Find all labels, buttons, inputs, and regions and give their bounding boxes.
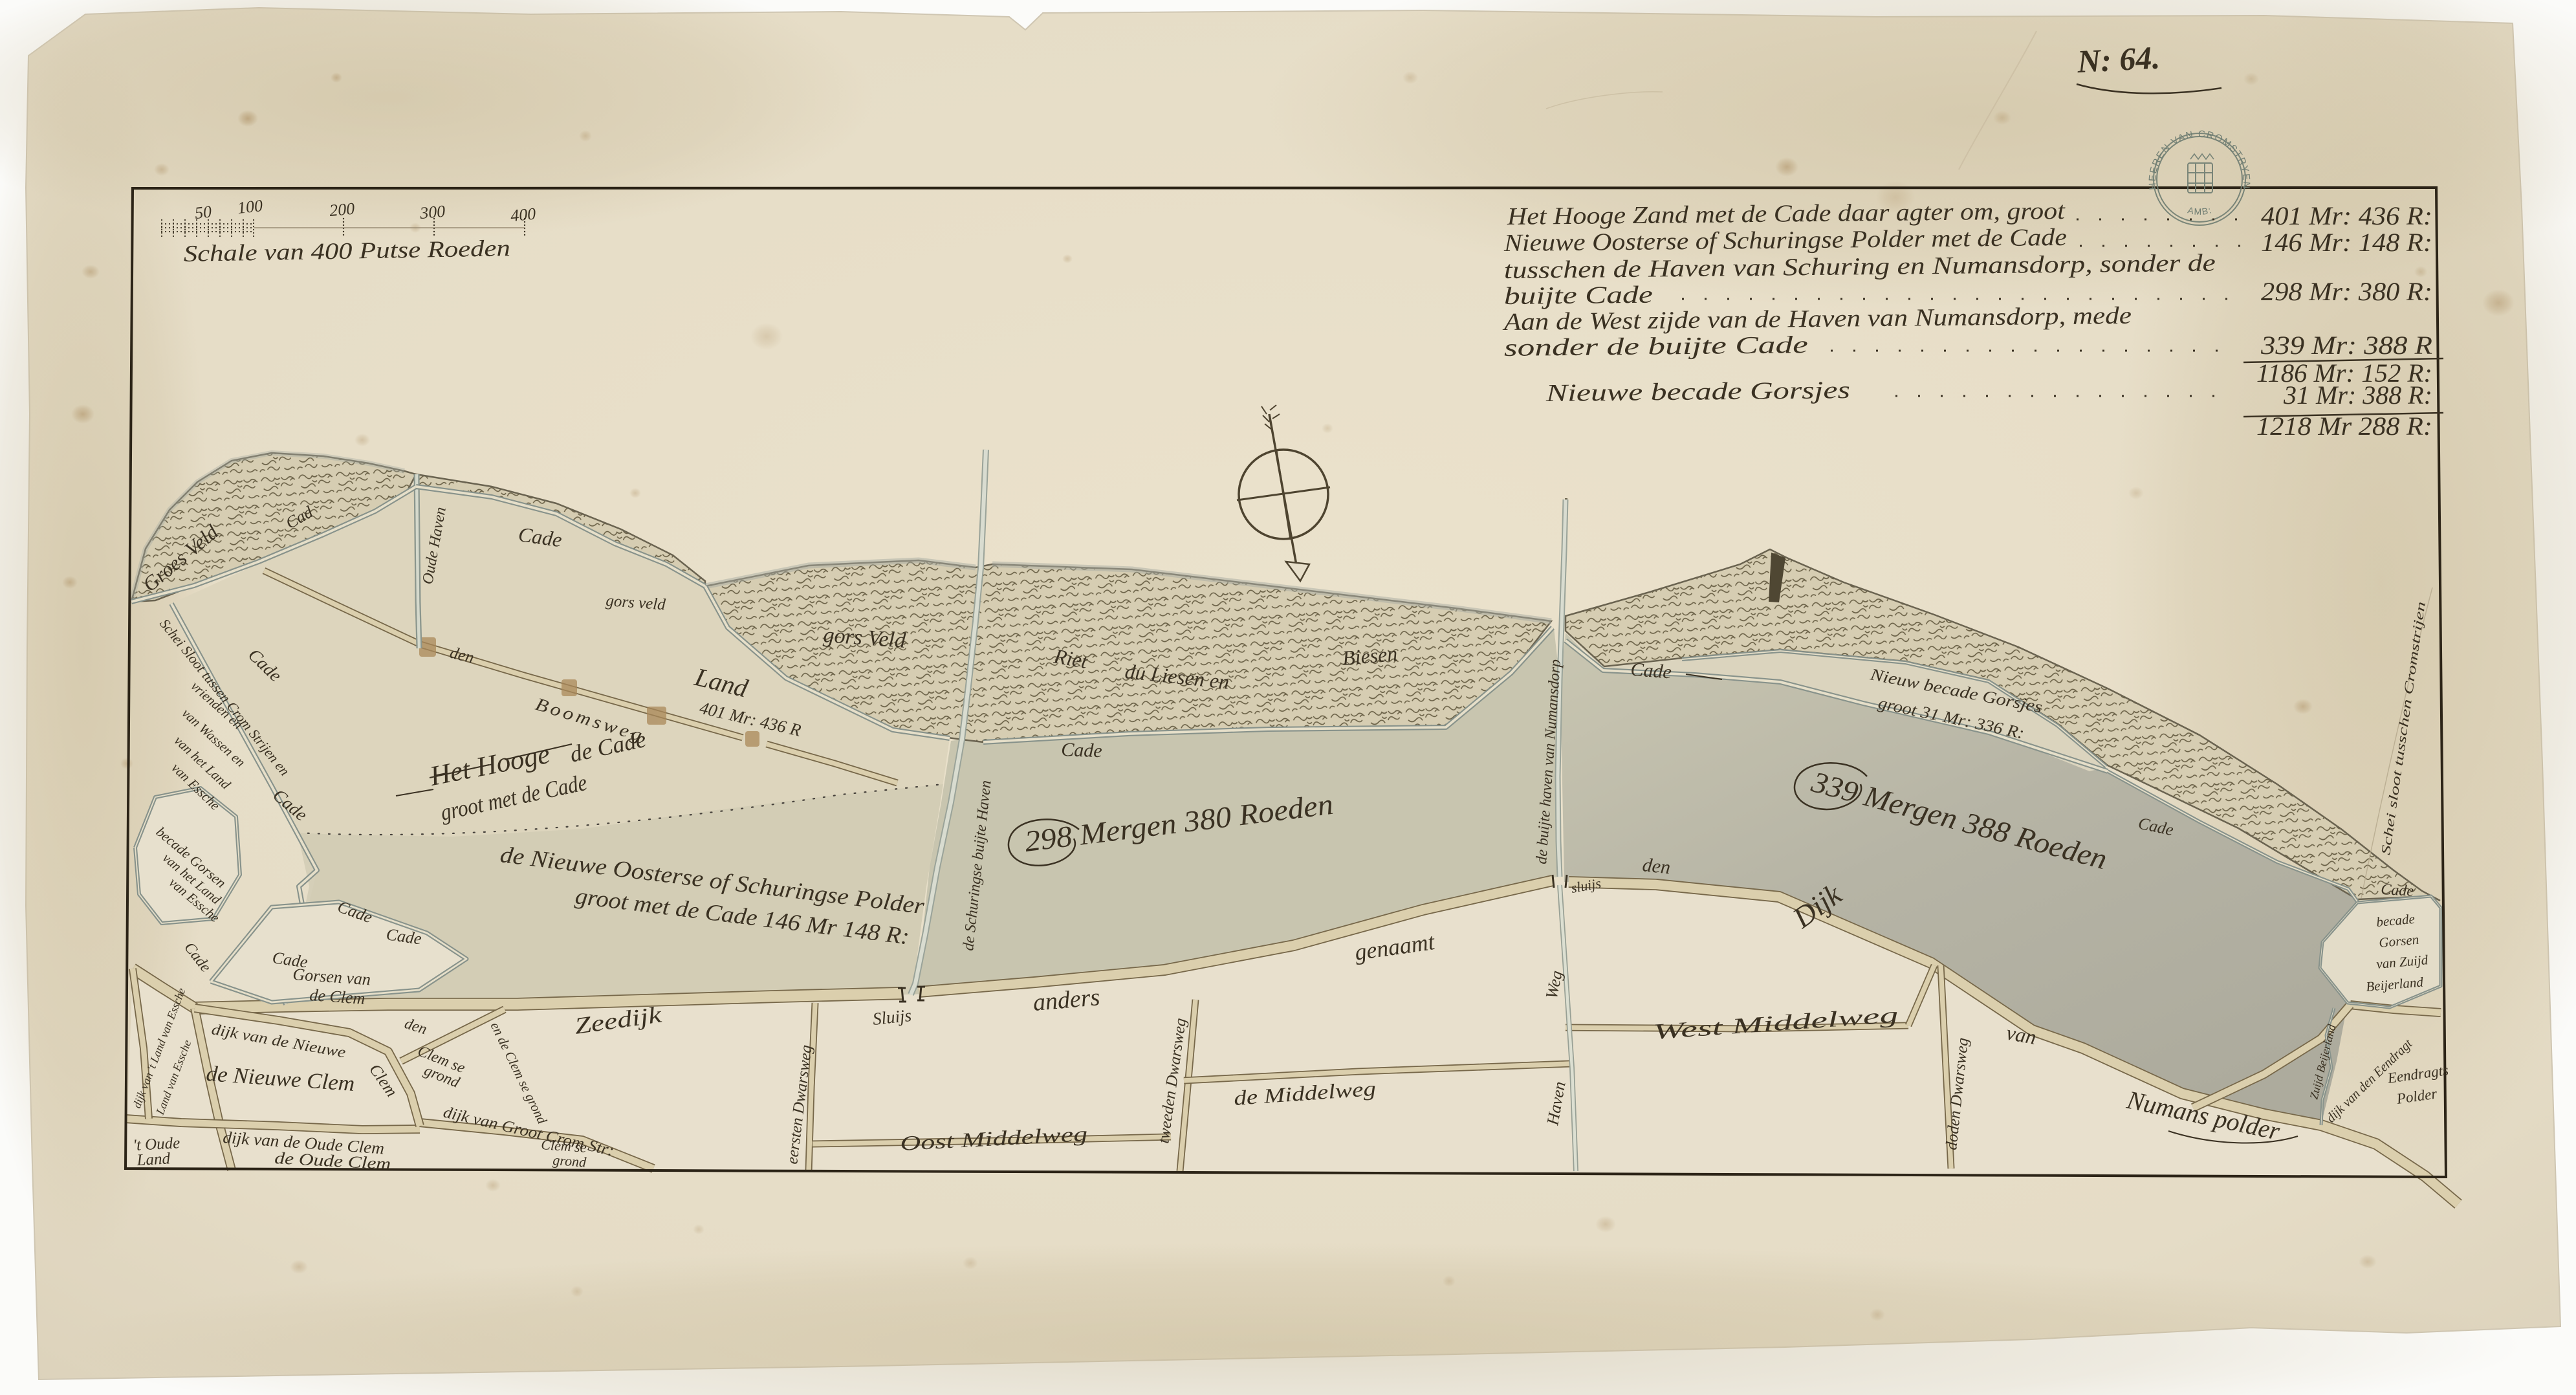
svg-text:Cade: Cade — [2381, 881, 2414, 900]
svg-text:Nieuwe becade Gorsjes: Nieuwe becade Gorsjes — [1545, 377, 1850, 407]
svg-text:50: 50 — [194, 202, 213, 223]
svg-text:400: 400 — [510, 204, 536, 225]
svg-text:200: 200 — [329, 199, 355, 220]
svg-text:401 Mr: 436 R:: 401 Mr: 436 R: — [2261, 201, 2432, 230]
svg-text:den: den — [1641, 854, 1672, 878]
svg-text:Cade: Cade — [1630, 659, 1672, 683]
svg-text:Cade: Cade — [1061, 739, 1102, 762]
svg-text:146 Mr: 148 R:: 146 Mr: 148 R: — [2261, 228, 2432, 257]
svg-text:31 Mr: 388 R:: 31 Mr: 388 R: — [2283, 380, 2432, 410]
svg-text:298 Mr: 380 R:: 298 Mr: 380 R: — [2261, 277, 2432, 306]
svg-text:Sluijs: Sluijs — [871, 1005, 912, 1029]
svg-text:N: 64.: N: 64. — [2076, 39, 2161, 80]
svg-text:grond: grond — [552, 1152, 587, 1170]
svg-text:buijte Cade: buijte Cade — [1504, 281, 1654, 310]
svg-text:Land: Land — [136, 1150, 171, 1169]
svg-text:1218 Mr 288 R:: 1218 Mr 288 R: — [2256, 412, 2432, 441]
svg-text:sonder de buijte Cade: sonder de buijte Cade — [1504, 331, 1809, 362]
svg-text:anders: anders — [1032, 983, 1101, 1016]
svg-text:300: 300 — [419, 202, 446, 223]
svg-text:339 Mr: 388 R: 339 Mr: 388 R — [2260, 331, 2432, 360]
svg-text:100: 100 — [237, 196, 264, 217]
svg-text:Biesen: Biesen — [1341, 642, 1398, 670]
svg-text:de Clem: de Clem — [309, 985, 366, 1008]
